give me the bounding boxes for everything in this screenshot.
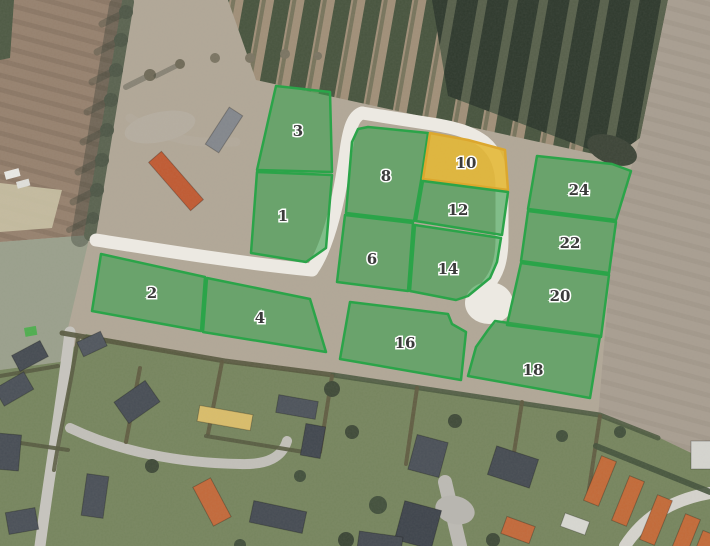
plot-22[interactable] bbox=[521, 211, 616, 273]
map-svg[interactable]: 3124810126141618202224 bbox=[0, 0, 710, 546]
aerial-plot-map: 3124810126141618202224 bbox=[0, 0, 710, 546]
plot-20[interactable] bbox=[507, 263, 609, 337]
plot-24[interactable] bbox=[528, 156, 631, 220]
plot-1[interactable] bbox=[251, 172, 332, 262]
plot-6[interactable] bbox=[337, 215, 413, 291]
plot-8[interactable] bbox=[346, 127, 428, 221]
